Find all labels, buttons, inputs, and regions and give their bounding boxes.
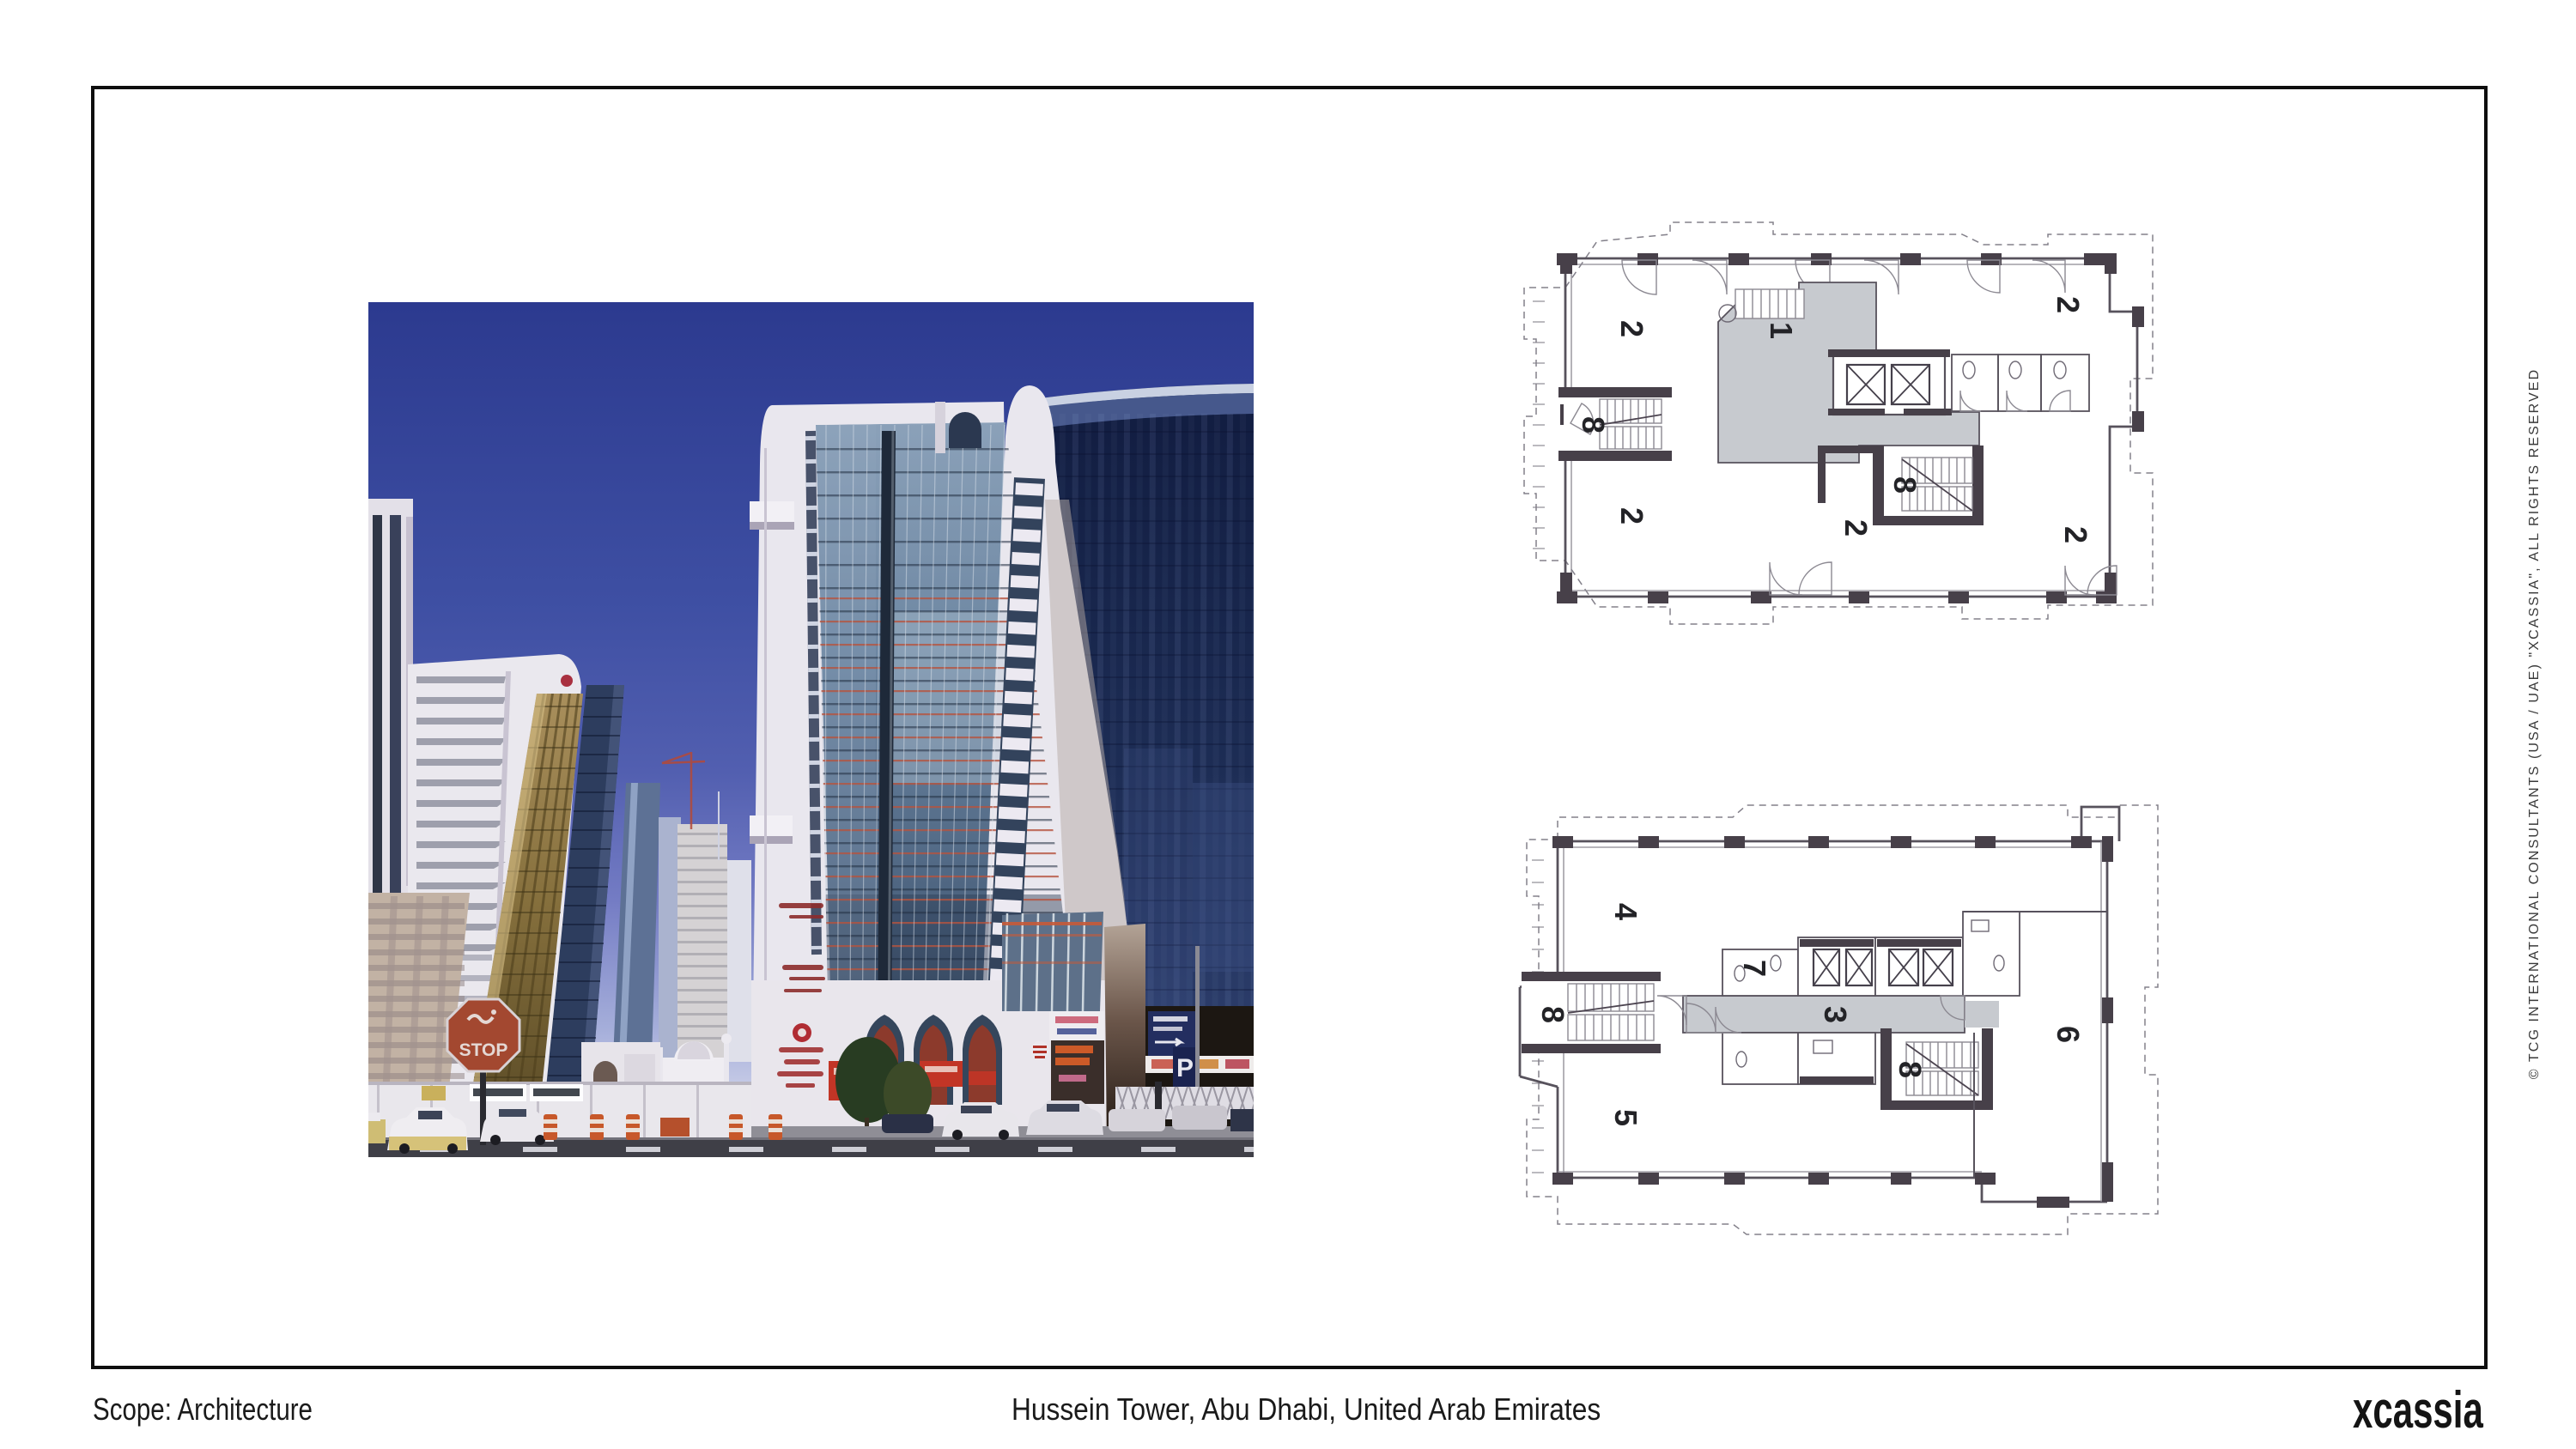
svg-text:4: 4 <box>1608 903 1643 920</box>
svg-text:1: 1 <box>1764 322 1799 339</box>
svg-text:P: P <box>1176 1054 1194 1082</box>
svg-text:2: 2 <box>2058 526 2093 543</box>
svg-text:2: 2 <box>1614 507 1649 524</box>
svg-text:3: 3 <box>1818 1006 1853 1023</box>
svg-text:8: 8 <box>1576 416 1611 433</box>
svg-text:6: 6 <box>2050 1026 2086 1043</box>
svg-text:2: 2 <box>2050 296 2086 313</box>
svg-text:5: 5 <box>1608 1109 1643 1126</box>
svg-text:8: 8 <box>1535 1006 1571 1023</box>
svg-text:8: 8 <box>1893 1061 1928 1078</box>
svg-text:8: 8 <box>1887 476 1923 494</box>
svg-text:2: 2 <box>1838 519 1874 537</box>
svg-text:7: 7 <box>1737 960 1772 977</box>
svg-text:2: 2 <box>1614 320 1649 337</box>
svg-text:STOP: STOP <box>459 1040 508 1060</box>
